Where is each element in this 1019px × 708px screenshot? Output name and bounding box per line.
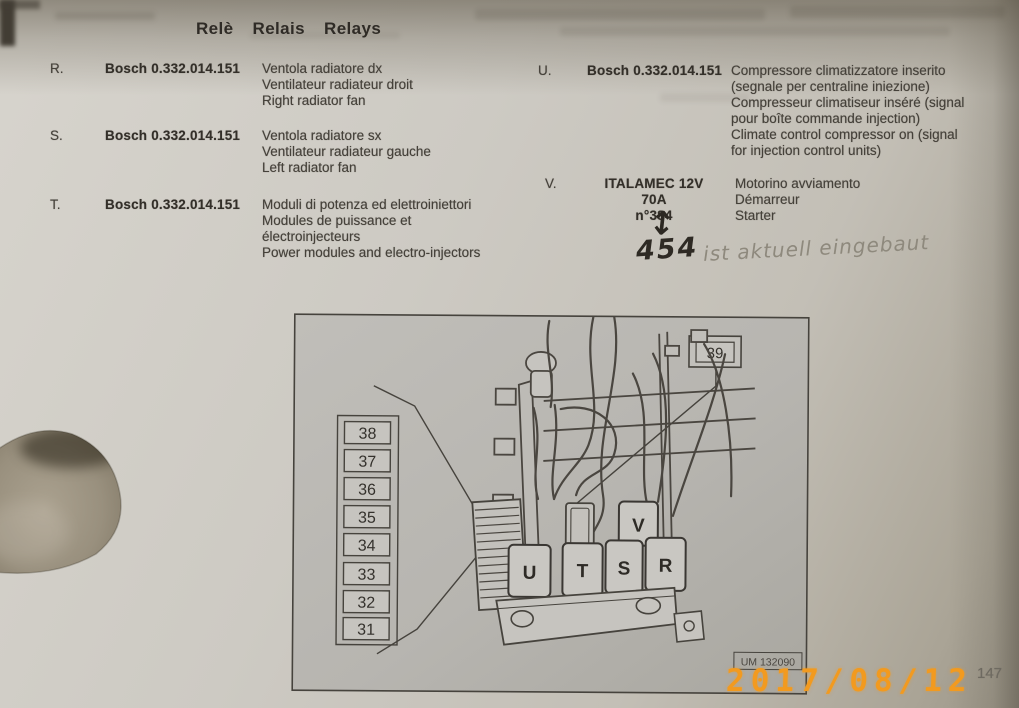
desc-line: Compressore climatizzatore inserito: [731, 63, 964, 79]
desc-line: Ventilateur radiateur droit: [262, 77, 413, 93]
fuse-slot-label: 31: [357, 622, 375, 639]
fuse-slot-label: 32: [357, 595, 375, 612]
relay-key-t-label: T: [577, 561, 589, 582]
relay-part-t: Bosch 0.332.014.151: [105, 197, 240, 213]
desc-line: Starter: [735, 208, 860, 224]
relay-key-u-label: U: [523, 563, 537, 584]
desc-line: pour boîte commande injection): [731, 111, 964, 127]
relay-id-t: T.: [50, 197, 61, 213]
fuse-slot-label: 34: [358, 538, 376, 555]
title-word-en: Relays: [324, 19, 381, 38]
title-word-it: Relè: [196, 19, 234, 38]
relay-key-r-label: R: [659, 556, 673, 577]
relay-desc-u: Compressore climatizzatore inserito (seg…: [731, 63, 964, 159]
fuse-slot-label: 35: [358, 510, 376, 527]
desc-line: (segnale per centraline iniezione): [731, 79, 964, 95]
relay-id-u: U.: [538, 63, 552, 79]
fuse-slot-label: 33: [358, 567, 376, 584]
relay-part-r: Bosch 0.332.014.151: [105, 61, 240, 77]
page-title: RelèRelaisRelays: [196, 19, 400, 39]
relay-key-s: S: [605, 540, 642, 593]
ghost-text: [790, 6, 1005, 18]
relay-key-r: R: [645, 538, 685, 591]
fuse-slot-label: 38: [359, 426, 377, 443]
desc-line: Ventola radiatore dx: [262, 61, 413, 77]
desc-line: Motorino avviamento: [735, 176, 860, 192]
photo-dark-edge: [0, 0, 40, 9]
desc-line: Power modules and electro-injectors: [262, 245, 480, 261]
relay-desc-t: Moduli di potenza ed elettroiniettori Mo…: [262, 197, 480, 261]
desc-line: for injection control units): [731, 143, 964, 159]
thumb-photo-artifact: [0, 422, 144, 592]
relay-key-u: U: [508, 545, 550, 597]
relay-key-v-label: V: [632, 516, 645, 537]
relay-desc-r: Ventola radiatore dx Ventilateur radiate…: [262, 61, 413, 109]
desc-line: Démarreur: [735, 192, 860, 208]
desc-line: Left radiator fan: [262, 160, 431, 176]
handwritten-note: ist aktuell eingebaut: [703, 230, 930, 266]
desc-line: Right radiator fan: [262, 93, 413, 109]
relay-part-u: Bosch 0.332.014.151: [587, 63, 722, 79]
ghost-text: [55, 12, 155, 20]
relay-desc-s: Ventola radiatore sx Ventilateur radiate…: [262, 128, 431, 176]
relay-key-s-label: S: [618, 558, 631, 579]
desc-line: Climate control compressor on (signal: [731, 127, 964, 143]
desc-line: Ventilateur radiateur gauche: [262, 144, 431, 160]
fuse-slot-label: 36: [358, 482, 376, 499]
fuse-slot-label: 37: [358, 454, 376, 471]
desc-line: Ventola radiatore sx: [262, 128, 431, 144]
desc-line: Compresseur climatiseur inséré (signal: [731, 95, 964, 111]
manual-page-photo: RelèRelaisRelays R. Bosch 0.332.014.151 …: [0, 0, 1019, 708]
desc-line: électroinjecteurs: [262, 229, 480, 245]
page-number: 147: [977, 665, 1002, 682]
desc-line: Modules de puissance et: [262, 213, 480, 229]
relay-key-t: T: [562, 543, 602, 596]
ghost-text: [560, 27, 950, 36]
title-word-fr: Relais: [253, 19, 306, 38]
relay-part-s: Bosch 0.332.014.151: [105, 128, 240, 144]
relay-id-s: S.: [50, 128, 63, 144]
relay-id-v: V.: [545, 176, 557, 192]
ghost-text: [475, 9, 765, 20]
relay-box-diagram: 38 37 36 35 34 33 32 31 39: [291, 311, 812, 697]
desc-line: Moduli di potenza ed elettroiniettori: [262, 197, 480, 213]
relay-id-r: R.: [50, 61, 64, 77]
relay-desc-v: Motorino avviamento Démarreur Starter: [735, 176, 860, 224]
camera-date-stamp: 2017/08/12: [725, 663, 973, 699]
handwritten-number: 454: [635, 232, 699, 267]
